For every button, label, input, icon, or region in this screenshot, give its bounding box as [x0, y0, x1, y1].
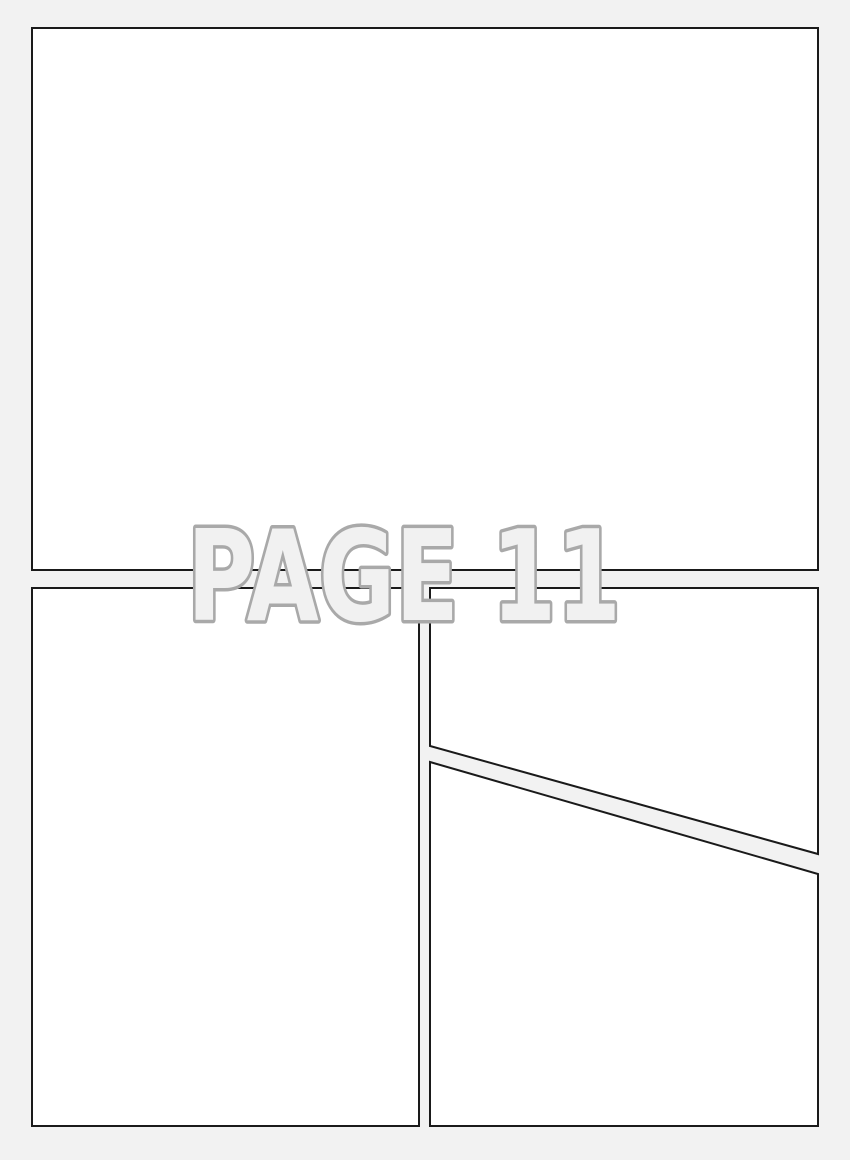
panel-bottom-left	[32, 588, 419, 1126]
panel-top	[32, 28, 818, 570]
comic-page-template: PAGE 11	[0, 0, 850, 1160]
page-title-watermark: PAGE 11	[187, 503, 621, 650]
page-canvas: PAGE 11	[0, 0, 850, 1160]
